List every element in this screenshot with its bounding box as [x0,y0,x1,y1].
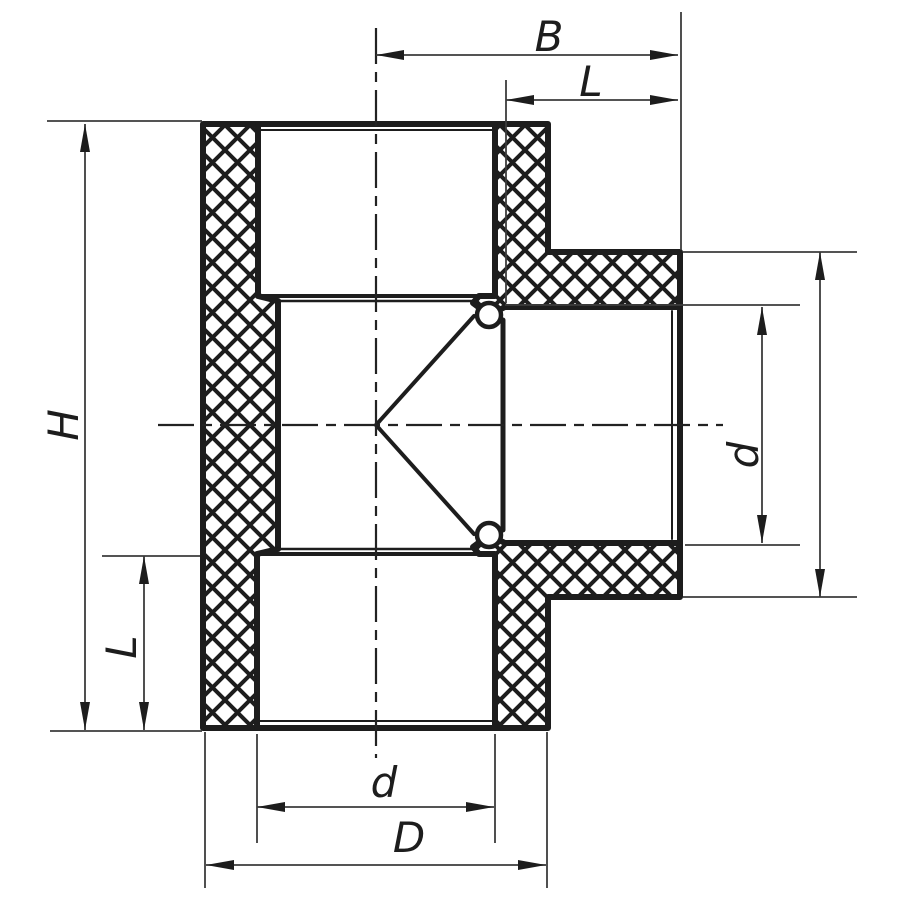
dim-label-branch-bore: d [719,441,768,468]
dimension-D-arrow-left [206,860,234,870]
dim-label-height: H [39,409,88,441]
dim-label-outer-diameter: D [393,813,425,862]
dimension-H-arrow-bottom [80,702,90,730]
dimension-D-arrow-right [518,860,546,870]
dimension-L-left-arrow-top [139,556,149,584]
funnel-transition-lower-line [376,425,474,534]
dimension-B-arrow-right [650,50,678,60]
dim-label-main-bore: d [371,758,398,807]
dimension-H-arrow-top [80,124,90,152]
dimension-d-right-arrow-bottom [757,515,767,543]
dimension-d-bottom-arrow-right [466,802,494,812]
funnel-transition-upper-line [376,316,474,425]
dimension-d-bottom: d [257,734,495,843]
dimension-L-top-arrow-right [650,95,678,105]
lower-bead-circle [477,523,501,547]
dim-label-socket-depth-top: L [579,57,602,106]
dimension-L-top-arrow-left [506,95,534,105]
upper-bead-circle [477,303,501,327]
dimension-L-left: L [97,556,200,730]
dimension-d-bottom-arrow-left [257,802,285,812]
upper-right-wall-section [473,124,680,315]
tee-fitting-drawing: B L H L d d [0,0,900,900]
tee-fitting-section-svg: B L H L d d [0,0,900,900]
dim-label-socket-depth-left: L [97,635,146,658]
dimension-branch-outer-arrow-bottom [815,569,825,597]
dimension-L-left-arrow-bottom [139,702,149,730]
dim-label-width-B: B [535,12,564,61]
dimension-B-arrow-left [376,50,404,60]
dimension-d-right-arrow-top [757,307,767,335]
dimension-branch-outer-arrow-top [815,252,825,280]
lower-right-wall-section [473,535,680,728]
